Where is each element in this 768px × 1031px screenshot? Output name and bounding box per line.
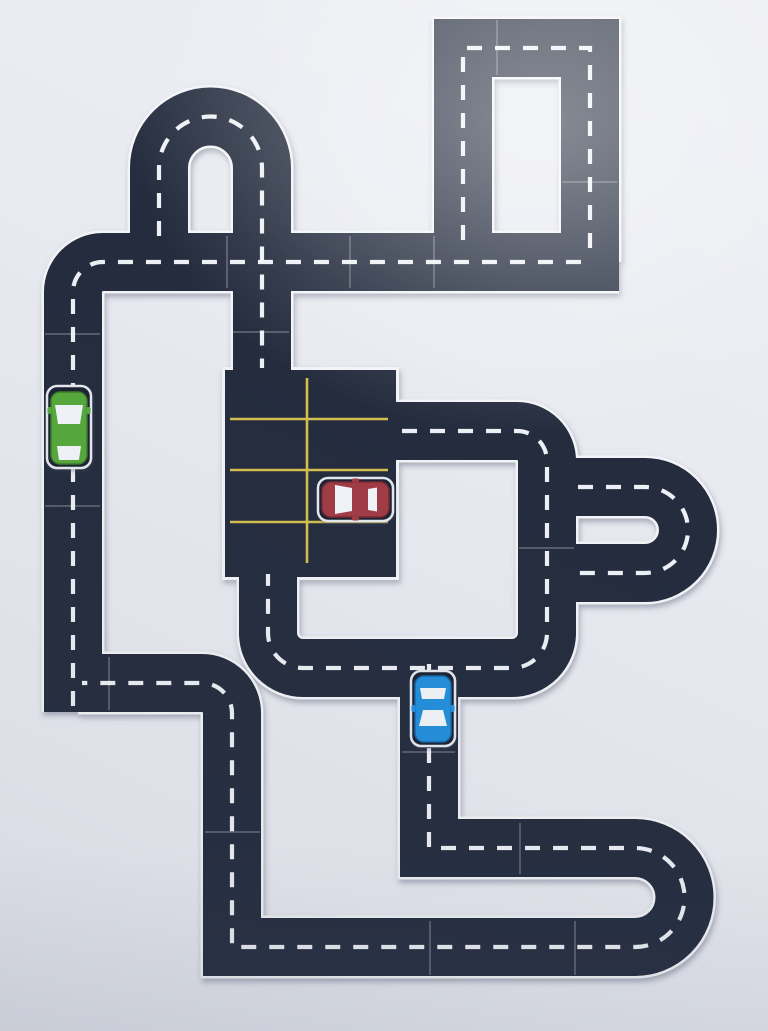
- blue-car-mirror-left: [412, 705, 416, 712]
- blue-car: [411, 671, 455, 746]
- red-car-windshield: [335, 485, 352, 514]
- green-car-rear-window: [57, 446, 81, 460]
- red-car-rear-window: [368, 488, 377, 512]
- green-car-mirror-right: [87, 407, 91, 414]
- blue-car-rear-window: [420, 688, 446, 699]
- green-car: [47, 386, 91, 468]
- red-car-mirror-top: [352, 479, 359, 483]
- track-scene: [0, 0, 768, 1031]
- green-car-mirror-left: [48, 407, 52, 414]
- green-car-windshield: [55, 405, 83, 424]
- road-track-photo: [0, 0, 768, 1031]
- blue-car-windshield: [419, 710, 447, 726]
- blue-car-body: [415, 676, 451, 742]
- parking-lot: [225, 370, 396, 577]
- red-car-body: [322, 482, 389, 517]
- red-car: [318, 478, 393, 521]
- red-car-mirror-bottom: [352, 517, 359, 521]
- blue-car-mirror-right: [451, 705, 455, 712]
